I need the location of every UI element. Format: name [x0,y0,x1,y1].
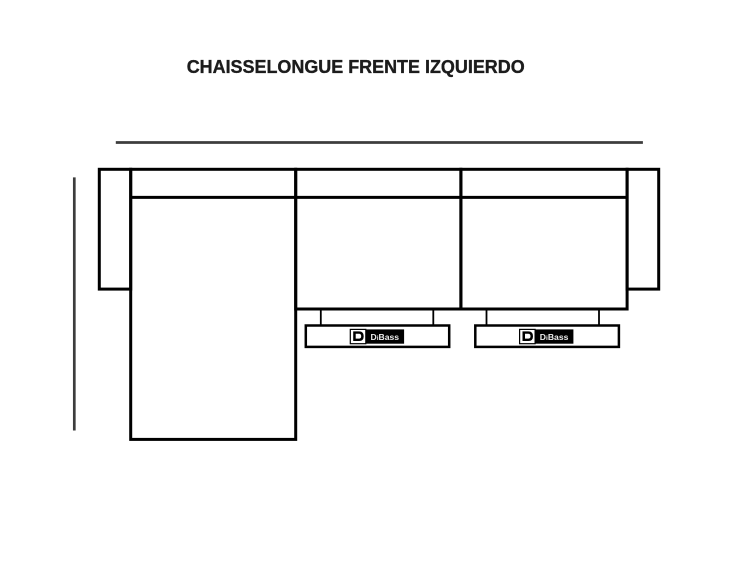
svg-text:DiBass: DiBass [371,332,400,342]
svg-text:DiBass: DiBass [540,332,569,342]
svg-text:CHAISSELONGUE FRENTE IZQUIERDO: CHAISSELONGUE FRENTE IZQUIERDO [187,57,525,77]
